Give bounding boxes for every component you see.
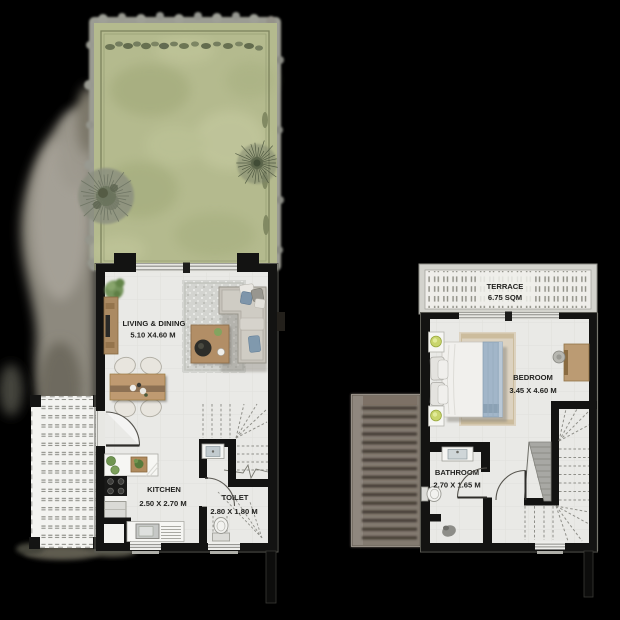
svg-text:2.50 X 2.70 M: 2.50 X 2.70 M <box>139 499 186 508</box>
svg-text:3.45 X 4.60 M: 3.45 X 4.60 M <box>509 386 556 395</box>
svg-text:KITCHEN: KITCHEN <box>147 485 181 494</box>
svg-text:2.70 X 1.65 M: 2.70 X 1.65 M <box>433 481 480 490</box>
svg-text:BEDROOM: BEDROOM <box>513 373 553 382</box>
svg-text:TERRACE: TERRACE <box>487 282 524 291</box>
svg-text:6.75 SQM: 6.75 SQM <box>488 293 522 302</box>
svg-text:TOILET: TOILET <box>222 493 249 502</box>
svg-text:5.10 X4.60 M: 5.10 X4.60 M <box>130 331 175 340</box>
svg-text:2.80 X 1.80 M: 2.80 X 1.80 M <box>210 507 257 516</box>
svg-text:BATHROOM: BATHROOM <box>435 468 479 477</box>
svg-text:LIVING & DINING: LIVING & DINING <box>122 319 185 328</box>
